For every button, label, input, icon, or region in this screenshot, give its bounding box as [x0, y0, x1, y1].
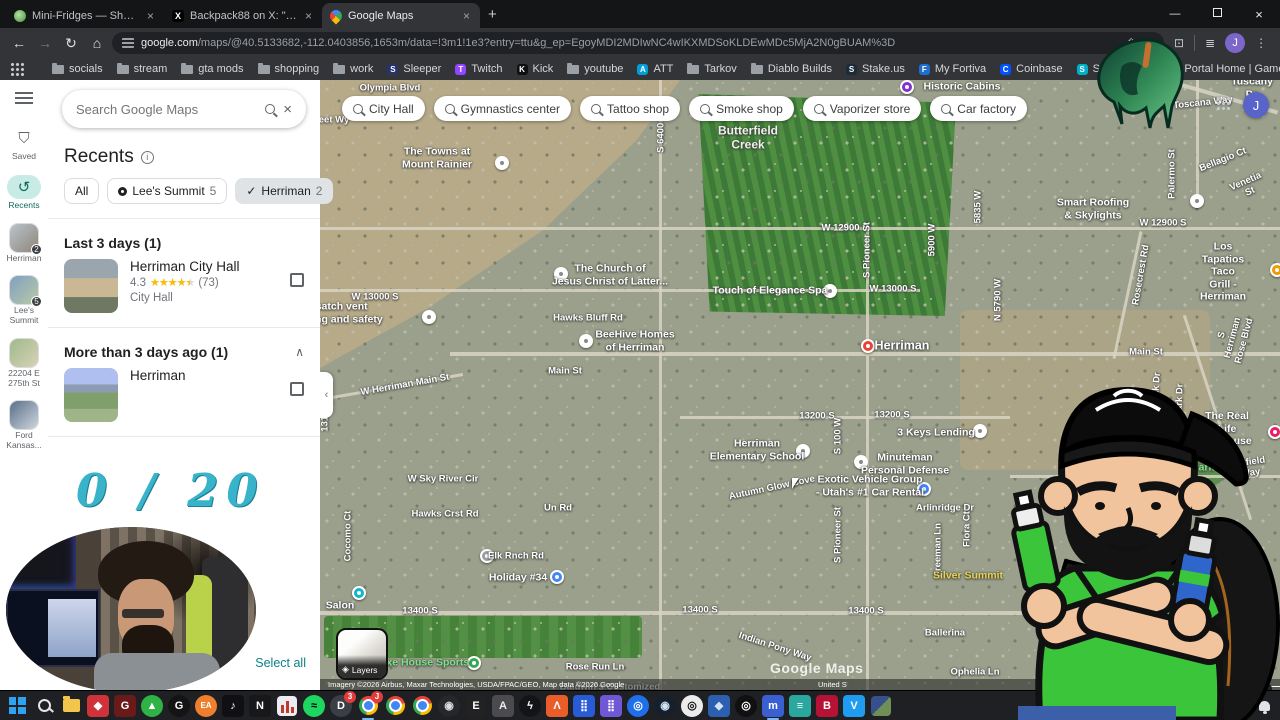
- rating-stars-fill: ★★★★★: [150, 278, 190, 289]
- map-label: Exotic Vehicle Group - Utah's #1 Car Ren…: [816, 473, 924, 498]
- map-label: Un Rd: [544, 502, 572, 513]
- map-label: Smart Roofing & Skylights: [1057, 196, 1129, 221]
- map-label: 5835 W: [972, 191, 983, 224]
- back-icon[interactable]: ←: [8, 35, 30, 51]
- place-photo: [64, 368, 118, 422]
- death-counter-overlay: 0 / 20: [76, 464, 266, 517]
- chrome-icon: [413, 696, 432, 715]
- search-icon: [445, 104, 455, 114]
- menu-hamburger-icon[interactable]: [15, 92, 33, 104]
- site-favicon-icon: A: [637, 64, 648, 75]
- info-icon[interactable]: i: [141, 151, 154, 164]
- notification-badge: J: [371, 691, 383, 703]
- shield-app[interactable]: ◆: [708, 695, 730, 717]
- map-label: HOA Park: [1166, 462, 1215, 475]
- map-label: Herriman: [875, 339, 930, 354]
- suburb-texture: [320, 80, 1280, 690]
- blue-round-app[interactable]: ◎: [627, 695, 649, 717]
- map-label: Butterfield Creek: [718, 124, 778, 153]
- chip-label: City Hall: [369, 102, 414, 116]
- active-indicator: [362, 718, 374, 720]
- bookmark-item[interactable]: AATT: [637, 63, 673, 75]
- sidebar-item-saved[interactable]: ⛉Saved: [0, 126, 48, 162]
- map-label: W Sky River Cir: [408, 473, 479, 484]
- new-tab-button[interactable]: +: [488, 6, 497, 23]
- bookmark-label: Twitch: [471, 63, 502, 75]
- sidebar-item-lee-s[interactable]: 5Lee's Summit: [0, 276, 48, 326]
- map-search-chip-smoke-shop[interactable]: Smoke shop: [689, 96, 794, 121]
- map-search-chips: City HallGymnastics centerTattoo shopSmo…: [342, 96, 1027, 121]
- road-line: [680, 416, 1010, 419]
- tab-title: Mini-Fridges — Shop — Freshe: [32, 10, 139, 22]
- close-button[interactable]: ×: [1238, 7, 1280, 22]
- microphone-icon[interactable]: [1144, 700, 1151, 711]
- bookmark-item[interactable]: youtube: [567, 63, 623, 75]
- notification-badge: 3: [344, 691, 356, 703]
- map-label: The Real Life UP House: [1201, 410, 1254, 448]
- map-label: Main St: [1129, 346, 1163, 357]
- bookmark-star-icon[interactable]: ☆: [1143, 36, 1154, 50]
- map-label: N 5790 W: [992, 279, 1003, 321]
- check-icon: ✓: [246, 184, 256, 198]
- sidebar-item-ford[interactable]: Ford Kansas...: [0, 401, 48, 451]
- minimize-button[interactable]: —: [1154, 8, 1196, 20]
- epic-games[interactable]: E: [465, 695, 487, 717]
- filter-chip-lee-s-summit[interactable]: Lee's Summit5: [107, 178, 227, 204]
- chip-label: Herriman: [261, 184, 310, 198]
- bookmark-label: work: [350, 63, 373, 75]
- windows-logo-icon: [9, 697, 26, 714]
- google-watermark: Google Maps: [770, 660, 863, 676]
- attribution-text: Imagery ©2026 Airbus, Maxar Technologies…: [328, 680, 624, 689]
- map-label: S Pioneer St: [861, 222, 872, 278]
- map-marker-white[interactable]: [422, 310, 436, 324]
- divider: [48, 436, 320, 437]
- place-title: Herriman City Hall: [130, 259, 278, 274]
- chip-label: Lee's Summit: [132, 184, 204, 198]
- vs-code[interactable]: V: [843, 695, 865, 717]
- notepad-app[interactable]: N: [249, 695, 271, 717]
- site-favicon-icon: C: [1000, 64, 1011, 75]
- grid-app-blue[interactable]: ⣿: [573, 695, 595, 717]
- apps-grid-icon[interactable]: [10, 62, 24, 76]
- monitor: [6, 589, 100, 667]
- place-category: City Hall: [130, 292, 278, 304]
- tab-close-icon[interactable]: ×: [145, 9, 156, 23]
- tab-close-icon[interactable]: ×: [303, 9, 314, 23]
- map-marker-white[interactable]: [579, 334, 593, 348]
- bookmark-item[interactable]: shopping: [258, 63, 320, 75]
- maximize-button[interactable]: [1196, 8, 1238, 20]
- rating-value: 4.3: [130, 277, 146, 289]
- bookmarks-bar: socialsstreamgta modsshoppingworkSSleepe…: [0, 58, 1280, 80]
- bookmark-item[interactable]: socials: [52, 63, 103, 75]
- attribution-region[interactable]: United S: [818, 680, 847, 689]
- share-icon[interactable]: ⇪: [1126, 36, 1136, 50]
- recent-place-row[interactable]: Herriman: [64, 368, 304, 422]
- select-checkbox[interactable]: [290, 382, 304, 396]
- chrome-profile-3[interactable]: [411, 695, 433, 717]
- bookmark-label: socials: [69, 63, 103, 75]
- section-header: Last 3 days (1): [64, 235, 304, 251]
- address-bar[interactable]: google.com/maps/@40.5133682,-112.0403856…: [112, 32, 1164, 54]
- site-favicon-icon: S: [387, 64, 398, 75]
- site-favicon-icon: S: [846, 64, 857, 75]
- divider: [48, 327, 320, 328]
- list-app[interactable]: ≡: [789, 695, 811, 717]
- tab-strip: Mini-Fridges — Shop — Freshe×XBackpack88…: [0, 0, 1280, 28]
- tab-title: Google Maps: [348, 10, 455, 22]
- search-icon: [700, 104, 710, 114]
- map-label: The Church of Jesus Christ of Latter...: [552, 262, 668, 287]
- search-icon: [591, 104, 601, 114]
- map-label: 3 Keys Lending: [897, 427, 975, 440]
- notification-bell-icon[interactable]: [1259, 701, 1270, 711]
- display-icon[interactable]: [1163, 701, 1177, 711]
- section-header: More than 3 days ago (1)∧: [64, 344, 304, 360]
- zoom-control[interactable]: + −: [1246, 625, 1272, 677]
- search-icon: [941, 104, 951, 114]
- section-title: More than 3 days ago (1): [64, 344, 228, 360]
- bookmark-label: Coinbase: [1016, 63, 1062, 75]
- section-title: Last 3 days (1): [64, 235, 161, 251]
- map-search-chip-vaporizer-store[interactable]: Vaporizer store: [803, 96, 921, 121]
- bookmark-item[interactable]: SSoFi - Home: [1077, 63, 1155, 75]
- folder-icon: [117, 65, 129, 74]
- steelseries-gg[interactable]: ◎: [681, 695, 703, 717]
- sidebar-item-label: Saved: [12, 152, 36, 162]
- map-marker-orange[interactable]: [1270, 263, 1280, 277]
- active-indicator: [767, 718, 779, 720]
- place-info: Herriman: [130, 368, 278, 386]
- bookmark-item[interactable]: CCoinbase: [1000, 63, 1062, 75]
- history-icon: ↺: [7, 175, 41, 199]
- folder-icon: [687, 65, 699, 74]
- map-marker-blue[interactable]: [550, 570, 564, 584]
- place-title: Herriman: [130, 368, 278, 383]
- map-label: S 100 W: [832, 418, 843, 454]
- chip-label: All: [75, 184, 88, 198]
- map-label: 13400 S: [848, 605, 883, 616]
- close-icon[interactable]: ×: [283, 101, 292, 118]
- map-label: The Towns at Mount Rainier: [402, 145, 472, 170]
- recents-title: Recents: [64, 146, 134, 168]
- chrome-icon: [386, 696, 405, 715]
- filter-chip-all[interactable]: All: [64, 178, 99, 204]
- place-info: Herriman City Hall4.3★★★★★★★★★★(73)City …: [130, 259, 278, 304]
- home-icon[interactable]: ⌂: [86, 35, 108, 51]
- road-line: [659, 80, 662, 690]
- ea-app[interactable]: EA: [195, 695, 217, 717]
- chevron-up-icon[interactable]: ∧: [295, 345, 304, 359]
- map-marker-purple[interactable]: [900, 80, 914, 94]
- bookmark-icon: ⛉: [7, 126, 41, 150]
- layers-icon: ◈: [342, 664, 349, 675]
- sidebar-item-label: Herriman: [7, 254, 42, 264]
- folder-icon: [333, 65, 345, 74]
- chip-label: Vaporizer store: [830, 102, 910, 116]
- stats-app[interactable]: [276, 695, 298, 717]
- map-label: 5900 W: [926, 224, 937, 257]
- search-icon: [353, 104, 363, 114]
- windows-search[interactable]: [33, 695, 55, 717]
- reading-list-icon[interactable]: ≣: [1205, 36, 1215, 50]
- bookmark-label: shopping: [275, 63, 320, 75]
- mixitup-app[interactable]: m: [762, 695, 784, 717]
- map-label: Silver Summit: [933, 570, 1003, 583]
- chip-count: 5: [210, 184, 217, 198]
- bookmark-item[interactable]: SStake.us: [846, 63, 905, 75]
- bookmark-label: SoFi - Home: [1093, 63, 1155, 75]
- map-search-chip-tattoo-shop[interactable]: Tattoo shop: [580, 96, 680, 121]
- chip-label: Smoke shop: [716, 102, 783, 116]
- bookmark-label: Tarkov: [704, 63, 736, 75]
- browser-tab[interactable]: XBackpack88 on X: "To say I am t×: [164, 3, 322, 28]
- place-thumbnail: [10, 339, 38, 367]
- map-label: W 12900 S: [1140, 217, 1187, 228]
- chart-bars-icon: [277, 696, 297, 716]
- map-marker-white[interactable]: [1190, 194, 1204, 208]
- pegman-button[interactable]: [1246, 683, 1272, 690]
- sidebar-item-22204-e[interactable]: 22204 E 275th St: [0, 339, 48, 389]
- search-icon: [38, 699, 51, 712]
- site-favicon-icon: F: [919, 64, 930, 75]
- tab-close-icon[interactable]: ×: [461, 9, 472, 23]
- folder-icon: [63, 699, 80, 712]
- map-label: W 13000 S: [870, 283, 917, 294]
- map-attribution: Imagery ©2026 Airbus, Maxar Technologies…: [320, 679, 1280, 690]
- map-marker-white[interactable]: [495, 156, 509, 170]
- map-canvas[interactable]: Olympia Blvdeet WyButterfield CreekHisto…: [320, 80, 1280, 690]
- map-label: BeeHive Homes of Herriman: [595, 328, 674, 353]
- map-search-chip-gymnastics-center[interactable]: Gymnastics center: [434, 96, 571, 121]
- browser-tab[interactable]: Mini-Fridges — Shop — Freshe×: [6, 3, 164, 28]
- map-label: 13200 S: [874, 409, 909, 420]
- bookmark-label: ATT: [653, 63, 673, 75]
- maps-favicon-icon: [328, 7, 345, 24]
- bookmark-item[interactable]: stream: [117, 63, 168, 75]
- chrome-profile-2[interactable]: [384, 695, 406, 717]
- steam[interactable]: ◉: [654, 695, 676, 717]
- review-count: (73): [198, 277, 218, 289]
- map-search-chip-car-factory[interactable]: Car factory: [930, 96, 1027, 121]
- search-box[interactable]: ×: [62, 90, 306, 128]
- map-label: Anfield Way: [1232, 454, 1267, 481]
- chip-label: Gymnastics center: [461, 102, 560, 116]
- place-thumbnail: [10, 401, 38, 429]
- site-favicon-icon: K: [517, 64, 528, 75]
- map-label: Flora Ct: [961, 511, 972, 547]
- panel-collapse-button[interactable]: ‹: [320, 372, 333, 418]
- select-checkbox[interactable]: [290, 273, 304, 287]
- menu-dots-icon[interactable]: ⋮: [1255, 36, 1267, 50]
- site-settings-icon[interactable]: [122, 38, 134, 48]
- bolt-app[interactable]: ϟ: [519, 695, 541, 717]
- bookmark-label: gta mods: [198, 63, 243, 75]
- sidebar-item-label: 22204 E 275th St: [8, 369, 40, 389]
- chip-label: Tattoo shop: [607, 102, 669, 116]
- zoom-in-button[interactable]: +: [1255, 628, 1264, 645]
- sidebar-item-label: Ford Kansas...: [6, 431, 41, 451]
- plant-favicon-icon: [14, 10, 26, 22]
- bookmark-item[interactable]: SSleeper: [387, 63, 441, 75]
- pc-tower: [6, 533, 76, 591]
- logitech-g-hub[interactable]: G: [168, 695, 190, 717]
- map-label: 13400 S: [402, 605, 437, 616]
- my-location-icon: [1253, 599, 1266, 612]
- road-line: [320, 611, 1280, 615]
- tab-title: Backpack88 on X: "To say I am t: [190, 10, 297, 22]
- map-label: Herriman Elementary School: [710, 437, 805, 462]
- map-label: Main St: [548, 365, 582, 376]
- place-rating: 4.3★★★★★★★★★★(73): [130, 277, 278, 289]
- bookmark-item[interactable]: work: [333, 63, 373, 75]
- search-icon: [814, 104, 824, 114]
- map-label: Hawks Bluff Rd: [553, 312, 623, 323]
- window-controls: — ×: [1154, 0, 1280, 28]
- chrome-profile-1[interactable]: J: [357, 695, 379, 717]
- browser-toolbar: ← → ↻ ⌂ google.com/maps/@40.5133682,-112…: [0, 28, 1280, 58]
- bookmark-item[interactable]: KKick: [517, 63, 554, 75]
- toolbar-divider: [1194, 35, 1195, 51]
- bookmark-item[interactable]: Tarkov: [687, 63, 736, 75]
- grid-app-purple[interactable]: ⣿: [600, 695, 622, 717]
- google-apps-grid-icon[interactable]: [1216, 96, 1230, 110]
- tiktok[interactable]: ♪: [222, 695, 244, 717]
- system-tray: 8:12 PM2/6/2026: [1144, 693, 1280, 718]
- map-label: Touch of Elegance Spa: [713, 285, 828, 298]
- feedback-link[interactable]: eedback: [1153, 680, 1181, 689]
- map-label: Ophelia Ln: [950, 666, 999, 677]
- map-label: Wasatch vent cleaning and safety: [320, 300, 383, 325]
- map-label: Cocomo Ct: [342, 511, 353, 562]
- bookmark-label: youtube: [584, 63, 623, 75]
- map-label: Hawks Crst Rd: [411, 508, 478, 519]
- x-favicon-icon: X: [172, 10, 184, 22]
- site-favicon-icon: ◆: [1168, 64, 1179, 75]
- bookmark-label: My Fortiva: [935, 63, 986, 75]
- map-label: 13400 S: [682, 604, 717, 615]
- speaker-icon[interactable]: [1189, 701, 1196, 711]
- windows-taskbar: ◆G▲GEA♪N≈D3J◉EAϟΛ⣿⣿◎◉◎◆◎m≡BV 8:12 PM2/6/…: [0, 690, 1280, 720]
- forward-icon[interactable]: →: [34, 35, 56, 51]
- sidebar-item-label: Recents: [8, 201, 39, 211]
- profile-avatar[interactable]: J: [1225, 33, 1245, 53]
- file-explorer[interactable]: [60, 695, 82, 717]
- zoom-out-button[interactable]: −: [1255, 657, 1264, 674]
- map-label: Elk Rnch Rd: [488, 550, 544, 561]
- glasses: [122, 609, 164, 618]
- recent-place-row[interactable]: Herriman City Hall4.3★★★★★★★★★★(73)City …: [64, 259, 304, 313]
- map-marker-teal[interactable]: [352, 586, 366, 600]
- bookmark-item[interactable]: FMy Fortiva: [919, 63, 986, 75]
- url-text: google.com/maps/@40.5133682,-112.0403856…: [141, 37, 1119, 49]
- search-icon[interactable]: [265, 104, 275, 114]
- filter-chips: AllLee's Summit5✓Herriman2: [64, 178, 304, 204]
- folder-icon: [751, 65, 763, 74]
- pin-icon: [118, 187, 127, 196]
- chip-count: 2: [316, 184, 323, 198]
- place-thumbnail: 2: [10, 224, 38, 252]
- discord[interactable]: D3: [330, 695, 352, 717]
- browser-tab[interactable]: Google Maps×: [322, 3, 480, 28]
- photo-icon: [871, 696, 891, 716]
- bookmark-item[interactable]: TTwitch: [455, 63, 502, 75]
- folder-icon: [52, 65, 64, 74]
- map-label: Salon: [326, 600, 355, 613]
- armoury-crate[interactable]: A: [492, 695, 514, 717]
- count-badge: 2: [31, 244, 42, 255]
- map-marker-red[interactable]: [861, 339, 875, 353]
- map-label: Los Tapatios Taco Grill - Herriman: [1195, 241, 1252, 304]
- my-location-button[interactable]: [1245, 591, 1273, 619]
- map-search-chip-city-hall[interactable]: City Hall: [342, 96, 425, 121]
- map-label: Rose Run Ln: [566, 661, 625, 672]
- bookmark-item[interactable]: Diablo Builds: [751, 63, 832, 75]
- sidebar-item-recents[interactable]: ↺Recents: [0, 175, 48, 211]
- dark-app[interactable]: ◉: [438, 695, 460, 717]
- map-label: Olympia Blvd: [360, 82, 421, 93]
- map-label: Palermo St: [1166, 149, 1177, 199]
- bookmark-label: Sleeper: [403, 63, 441, 75]
- bookmark-item[interactable]: gta mods: [181, 63, 243, 75]
- green-launcher[interactable]: ▲: [141, 695, 163, 717]
- database-app[interactable]: B: [816, 695, 838, 717]
- webcam-overlay: [6, 527, 256, 693]
- count-badge: 5: [31, 296, 42, 307]
- search-sidebar-icon[interactable]: ⊡: [1174, 36, 1184, 50]
- map-label: S Pioneer St: [832, 507, 843, 563]
- lambda-app[interactable]: Λ: [546, 695, 568, 717]
- search-input[interactable]: [76, 102, 257, 117]
- place-thumbnail: 5: [10, 276, 38, 304]
- spotify[interactable]: ≈: [303, 695, 325, 717]
- site-favicon-icon: T: [455, 64, 466, 75]
- site-favicon-icon: S: [1077, 64, 1088, 75]
- bookmark-label: Kick: [533, 63, 554, 75]
- map-label: Holiday #34: [489, 572, 547, 585]
- account-avatar[interactable]: J: [1243, 92, 1269, 118]
- firebot-app[interactable]: ◆: [87, 695, 109, 717]
- windows-start[interactable]: [6, 695, 28, 717]
- folder-icon: [181, 65, 193, 74]
- map-label: 13200 S: [799, 410, 834, 421]
- map-marker-pink[interactable]: [1268, 425, 1280, 439]
- bookmark-item[interactable]: ◆Portal Home | Game...: [1168, 63, 1280, 75]
- chip-label: Car factory: [957, 102, 1016, 116]
- obs-studio[interactable]: ◎: [735, 695, 757, 717]
- map-label: Historic Cabins: [923, 81, 1000, 94]
- reload-icon[interactable]: ↻: [60, 35, 82, 52]
- filter-chip-herriman[interactable]: ✓Herriman2: [235, 178, 333, 204]
- folder-icon: [258, 65, 270, 74]
- sidebar-item-label: Lee's Summit: [10, 306, 39, 326]
- place-photo: [64, 259, 118, 313]
- taskbar-clock[interactable]: 8:12 PM2/6/2026: [1208, 693, 1247, 718]
- sidebar-item-herriman[interactable]: 2Herriman: [0, 224, 48, 264]
- bookmark-label: Diablo Builds: [768, 63, 832, 75]
- bookmark-label: Stake.us: [862, 63, 905, 75]
- road-line: [320, 227, 1280, 230]
- bookmark-label: Portal Home | Game...: [1184, 63, 1280, 75]
- map-label: 13400 S: [1099, 603, 1134, 614]
- select-all-link[interactable]: Select all: [255, 656, 306, 670]
- rating-stars: ★★★★★★★★★★: [150, 278, 194, 289]
- layers-button[interactable]: ◈Layers: [336, 628, 388, 680]
- g-app[interactable]: G: [114, 695, 136, 717]
- mouse-cursor: [792, 478, 802, 489]
- photo-app[interactable]: [870, 695, 892, 717]
